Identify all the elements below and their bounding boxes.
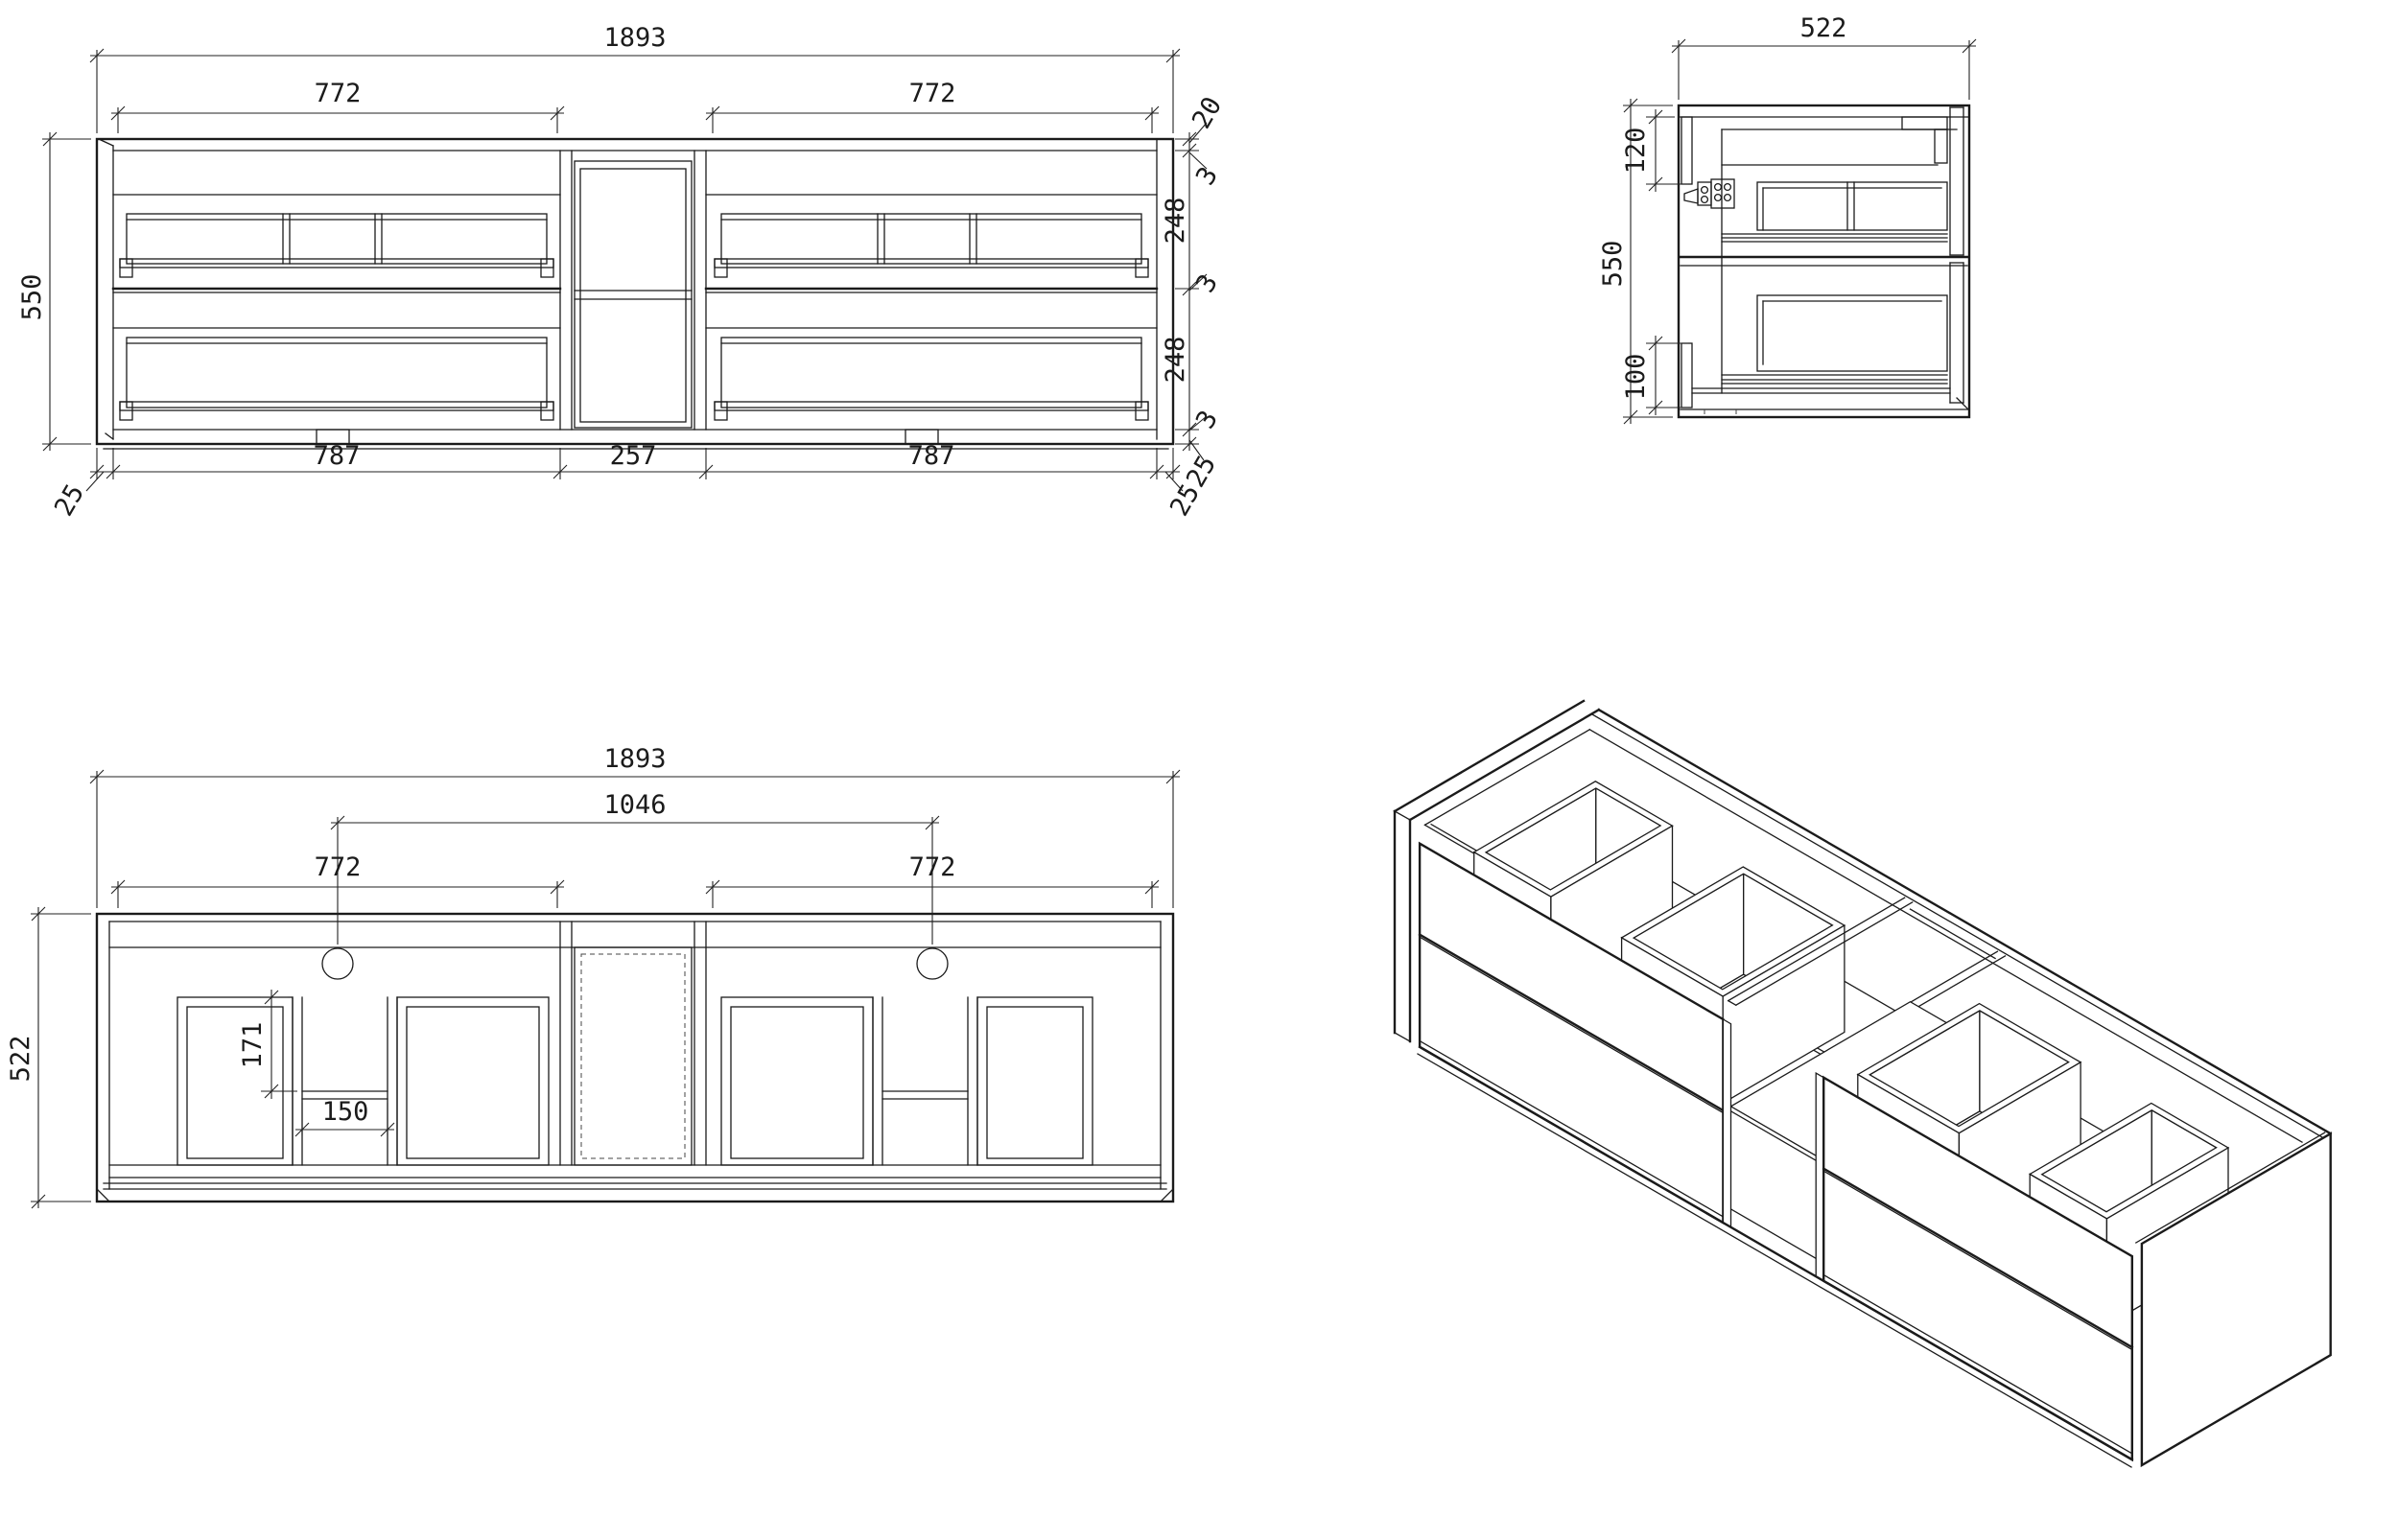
plan-left-drawer-boxes	[177, 997, 549, 1165]
technical-drawing-canvas: 1893 772 772 550 20 3 248	[0, 0, 2398, 1540]
dim-front-787a: 787	[314, 441, 361, 471]
dim-plan-left772: 772	[315, 852, 362, 882]
plan-middle-section	[560, 922, 706, 1165]
dim-front-top20: 20	[1187, 92, 1228, 134]
dim-front-left772: 772	[315, 79, 362, 108]
dim-plan-right772: 772	[909, 852, 956, 882]
dim-plan-cutout-width: 150	[322, 1097, 369, 1127]
dim-front-bleft25: 25	[49, 479, 90, 522]
dim-plan-depth: 522	[6, 1036, 35, 1083]
dim-plan-faucetspan: 1046	[603, 790, 666, 820]
dim-front-height: 550	[17, 274, 47, 321]
front-elevation-view: 1893 772 772 550 20 3 248	[17, 23, 1228, 522]
dim-front-257: 257	[610, 441, 657, 471]
dim-side-depth: 522	[1800, 13, 1847, 43]
dim-side-bottom100: 100	[1621, 354, 1651, 401]
faucet-hole-left	[322, 948, 353, 979]
side-section-view: 522 550 120 100	[1598, 13, 1976, 424]
dim-front-248a: 248	[1161, 198, 1190, 245]
front-right-drawers	[706, 195, 1157, 420]
dim-front-787b: 787	[908, 441, 955, 471]
dim-front-total: 1893	[603, 23, 666, 53]
side-drawer-sections	[1681, 129, 1967, 416]
dim-front-248b: 248	[1161, 337, 1190, 384]
dim-plan-total: 1893	[603, 744, 666, 774]
front-middle-section	[560, 151, 706, 430]
drawing-sheet: 1893 772 772 550 20 3 248	[0, 0, 2398, 1540]
plan-view: 1893 1046 772 772 522 171 150	[6, 744, 1180, 1208]
dim-side-top120: 120	[1621, 128, 1651, 175]
isometric-view	[1395, 701, 2331, 1467]
faucet-hole-right	[917, 948, 948, 979]
dim-side-height: 550	[1598, 241, 1628, 288]
dim-front-gap3a: 3	[1190, 162, 1224, 191]
side-dimensions: 522 550 120 100	[1598, 13, 1976, 424]
dim-plan-cutout-depth: 171	[238, 1022, 268, 1069]
dim-front-gap3b: 3	[1190, 269, 1224, 298]
front-left-drawers	[113, 195, 560, 420]
dim-front-right772: 772	[909, 79, 956, 108]
plan-faucet-holes	[322, 948, 948, 979]
plan-right-drawer-boxes	[721, 997, 1093, 1165]
front-dimensions: 1893 772 772 550 20 3 248	[17, 23, 1228, 522]
plan-dimensions: 1893 1046 772 772 522 171 150	[6, 744, 1180, 1208]
